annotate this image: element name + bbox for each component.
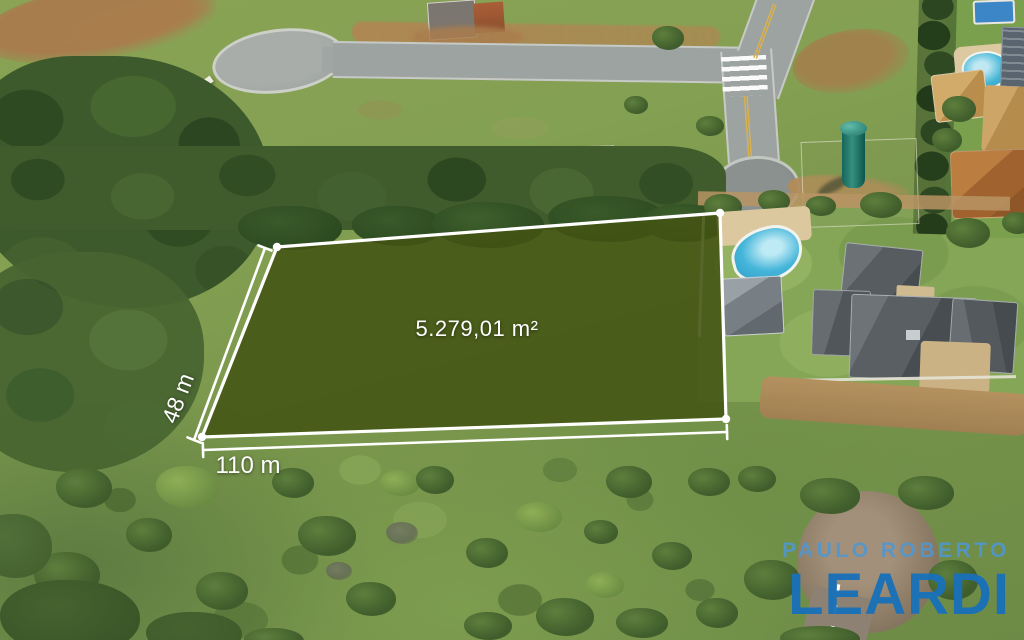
tree — [806, 196, 836, 216]
bush — [56, 468, 112, 508]
main-house-skylight — [906, 330, 920, 340]
tree — [800, 478, 860, 514]
aerial-photo: 5.279,01 m² 110 m 48 m PAULO ROBERTO LEA… — [0, 0, 1024, 640]
water-tower-cap — [840, 121, 867, 136]
bush — [624, 96, 648, 114]
canopy-bump — [238, 206, 342, 250]
bush — [464, 612, 512, 640]
bush — [196, 572, 248, 610]
tree — [932, 128, 962, 152]
parcel-frontage-label: 110 m — [201, 452, 295, 480]
bush — [346, 582, 396, 616]
bush — [738, 466, 776, 492]
bush — [586, 572, 624, 598]
bush — [652, 26, 684, 50]
bush — [298, 516, 356, 556]
bush — [696, 116, 724, 136]
bush — [652, 542, 692, 570]
dead-bush — [386, 522, 418, 544]
brand-name-top: PAULO ROBERTO — [782, 540, 1010, 561]
brand-name-main: LEARDI — [782, 566, 1010, 624]
bush — [606, 466, 652, 498]
canopy-bump — [432, 202, 544, 248]
tree — [942, 96, 976, 122]
bush — [584, 520, 618, 544]
brand-watermark: PAULO ROBERTO LEARDI — [782, 540, 1010, 624]
bush — [416, 466, 454, 494]
bush — [696, 598, 738, 628]
canopy-bump — [352, 206, 444, 246]
bush — [688, 468, 730, 496]
guest-house-roof — [722, 275, 785, 336]
bush — [466, 538, 508, 568]
bush — [516, 502, 562, 532]
tan-roof-house-2 — [981, 85, 1024, 153]
tree — [860, 192, 902, 218]
road-main — [333, 41, 769, 84]
bush — [126, 518, 172, 552]
pool-northeast-top — [973, 0, 1016, 25]
bush — [536, 598, 594, 636]
driveway — [919, 341, 991, 393]
crosswalk — [721, 55, 768, 97]
tree — [898, 476, 954, 510]
dead-bush — [326, 562, 352, 580]
water-tower — [842, 128, 865, 188]
bush — [616, 608, 668, 638]
tree — [946, 218, 990, 248]
bush — [380, 470, 420, 496]
parcel-area-label: 5.279,01 m² — [397, 316, 557, 341]
